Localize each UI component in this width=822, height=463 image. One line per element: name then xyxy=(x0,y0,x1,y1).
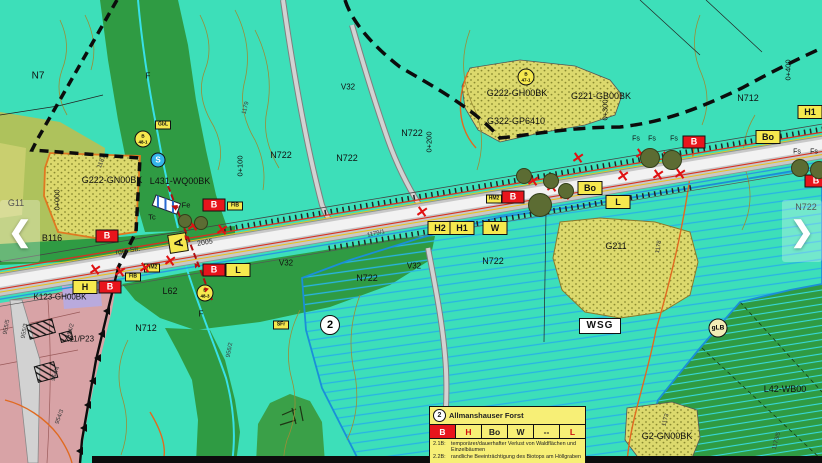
legend-badge-dash: -- xyxy=(534,425,560,438)
conflict-legend: 2 Allmanshauser Forst B H Bo W -- L 2.1B… xyxy=(429,406,586,463)
legend-badge-b: B xyxy=(430,425,456,438)
legend-entry: 2.1B: temporärer/dauerhafter Verlust von… xyxy=(433,441,582,453)
legend-entry-code: 2.2B: xyxy=(433,454,449,460)
legend-entries: 2.1B: temporärer/dauerhafter Verlust von… xyxy=(430,439,585,463)
legend-entry-code: 2.1B: xyxy=(433,441,449,453)
previous-image-button[interactable]: ❮ xyxy=(0,200,40,262)
next-image-button[interactable]: ❯ xyxy=(782,200,822,262)
map-viewport: N7G11B116G222-GN00BKL431-WQ00BKK123-GH00… xyxy=(0,0,822,463)
legend-number-circle: 2 xyxy=(433,409,446,422)
legend-entry: 2.2B: randliche Beeinträchtigung des Bio… xyxy=(433,454,582,460)
basemap-svg xyxy=(0,0,822,463)
legend-badge-w: W xyxy=(508,425,534,438)
legend-badge-h: H xyxy=(456,425,482,438)
legend-header: 2 Allmanshauser Forst xyxy=(430,407,585,425)
legend-badge-row: B H Bo W -- L xyxy=(430,425,585,439)
zone-g222-gn xyxy=(44,153,140,238)
legend-entry-text: temporärer/dauerhafter Verlust von Waldf… xyxy=(451,441,582,453)
legend-title: Allmanshauser Forst xyxy=(449,411,524,420)
legend-entry-text: randliche Beeinträchtigung des Biotops a… xyxy=(451,454,581,460)
legend-badge-bo: Bo xyxy=(482,425,508,438)
legend-badge-l: L xyxy=(560,425,585,438)
